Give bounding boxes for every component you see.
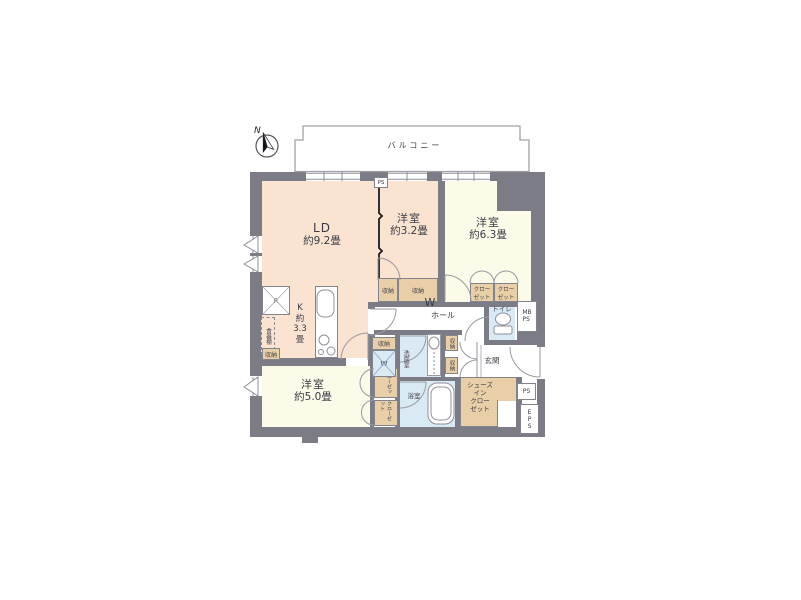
toilet-icon bbox=[496, 313, 511, 325]
stove-burner-2 bbox=[327, 347, 335, 355]
bedroom50-label: 洋室 約5.0畳 bbox=[284, 378, 342, 404]
bedroom63-name: 洋室 bbox=[460, 216, 516, 229]
entrance-label: 玄関 bbox=[481, 356, 503, 365]
door-bedroom50-closet-bifold bbox=[360, 369, 374, 425]
hall-w-label: W bbox=[423, 296, 437, 309]
ld-size: 約9.2畳 bbox=[292, 235, 352, 248]
window-left-3 bbox=[244, 377, 258, 396]
bedroom32-label: 洋室 約3.2畳 bbox=[383, 212, 435, 238]
door-toilet bbox=[465, 317, 489, 341]
door-bedroom63 bbox=[445, 275, 471, 301]
door-bedroom63-closet-bifold bbox=[470, 271, 518, 283]
window-left-2 bbox=[244, 256, 258, 272]
fridge-cross bbox=[263, 287, 289, 314]
compass-north-label: N bbox=[254, 126, 261, 136]
bedroom32-size: 約3.2畳 bbox=[383, 225, 435, 238]
shoes-in-closet-label: シューズ イン クロー ゼット bbox=[456, 381, 504, 414]
ld-label: LD 約9.2畳 bbox=[292, 221, 352, 248]
bathtub-icon bbox=[428, 383, 454, 424]
kitchen-label: K 約 3.3 畳 bbox=[291, 303, 309, 346]
window-top-3 bbox=[442, 172, 490, 181]
bedroom50-size: 約5.0畳 bbox=[284, 391, 342, 404]
door-entry-storage bbox=[460, 342, 477, 377]
washer-cross bbox=[373, 351, 395, 376]
toilet-tank bbox=[494, 326, 512, 334]
bedroom63-label: 洋室 約6.3畳 bbox=[460, 216, 516, 242]
stove-burner-3 bbox=[319, 350, 324, 355]
partition-zigzag bbox=[379, 188, 382, 278]
floorplan-canvas: R 食器棚 収納 収納 収納 クロー ゼット クロー ゼット クローゼット クロ… bbox=[0, 0, 801, 600]
bathroom-label: 浴室 bbox=[403, 393, 425, 401]
door-bedroom32-closet bbox=[378, 258, 400, 280]
vanity-sink-icon bbox=[429, 337, 439, 349]
ld-name: LD bbox=[292, 221, 352, 235]
washroom-label: 洗面室 bbox=[402, 343, 409, 375]
bedroom63-size: 約6.3畳 bbox=[460, 229, 516, 242]
hall-label: ホール bbox=[427, 311, 459, 321]
floorplan-linework: N bbox=[0, 0, 801, 600]
door-bedroom50 bbox=[341, 333, 368, 360]
stove-burner-1 bbox=[319, 335, 329, 345]
window-top-1 bbox=[306, 172, 360, 181]
door-entrance bbox=[510, 347, 540, 377]
door-ld-hall bbox=[370, 309, 396, 335]
window-top-2 bbox=[388, 172, 427, 181]
bedroom50-name: 洋室 bbox=[284, 378, 342, 391]
toilet-label: トイレ bbox=[490, 306, 514, 314]
window-left-1 bbox=[244, 236, 258, 253]
kitchen-sink-icon bbox=[317, 290, 334, 317]
bedroom32-name: 洋室 bbox=[383, 212, 435, 225]
balcony-label: バルコニー bbox=[365, 141, 465, 151]
